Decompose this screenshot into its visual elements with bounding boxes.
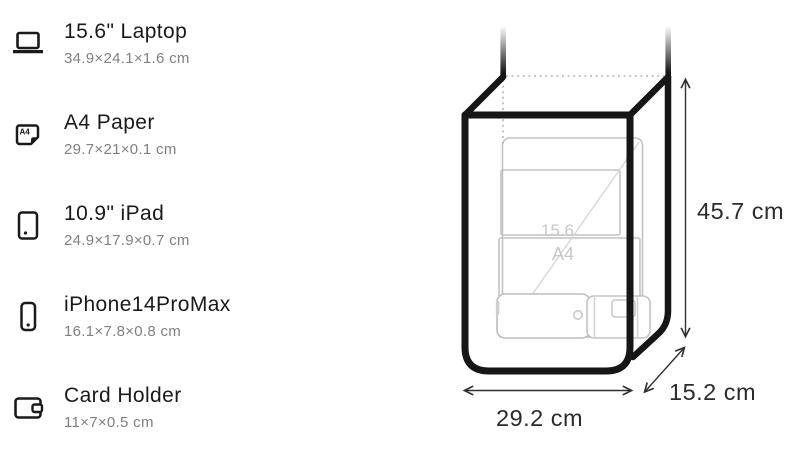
- bag-top-right-edge: [630, 77, 668, 115]
- depth-dimension-label: 15.2 cm: [669, 379, 756, 405]
- bag-top-left-edge: [465, 77, 503, 115]
- ghost-laptop-size-label: 15.6: [541, 221, 574, 240]
- bag-size-infographic: 15.6" Laptop 34.9×24.1×1.6 cm A4 A4 Pape…: [0, 0, 800, 455]
- strap-left: [500, 26, 506, 78]
- bag-straps: [500, 26, 671, 78]
- ghost-card-holder-outline: [587, 296, 650, 338]
- height-dimension-label: 45.7 cm: [697, 198, 784, 224]
- ghost-a4-label: A4: [552, 244, 574, 264]
- width-dimension-label: 29.2 cm: [496, 405, 583, 431]
- bag-hidden-edges: [503, 76, 664, 144]
- ghost-iphone-outline: [496, 294, 590, 338]
- bag-diagram: 15.6 A4: [0, 0, 800, 455]
- strap-right: [665, 26, 671, 78]
